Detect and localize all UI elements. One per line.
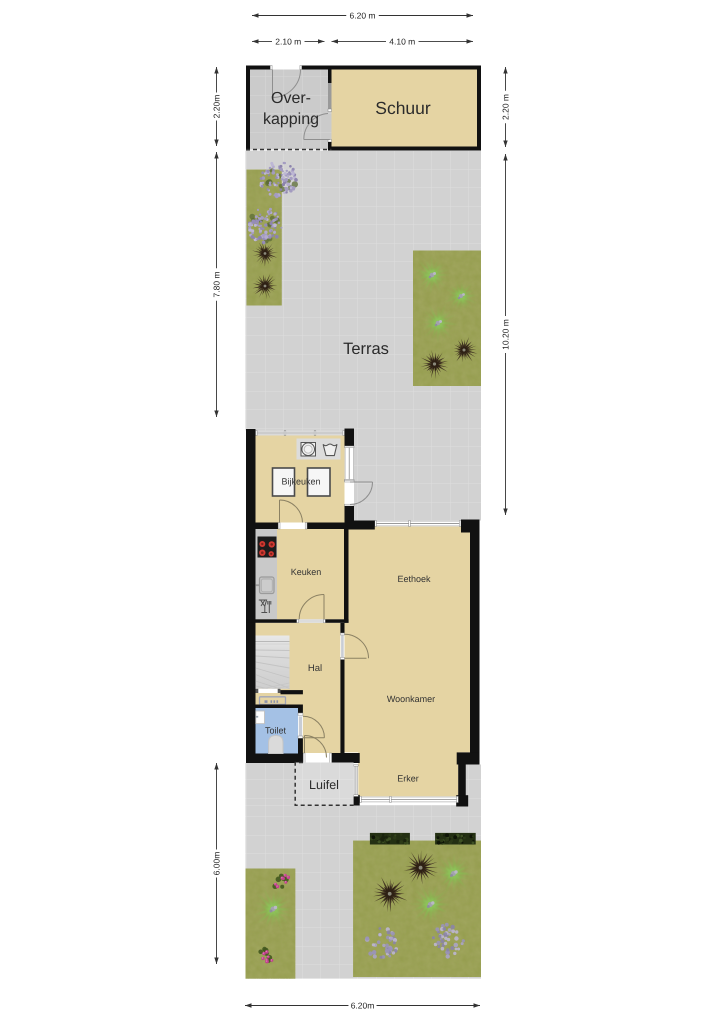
svg-text:Terras: Terras: [343, 340, 389, 358]
svg-text:Eethoek: Eethoek: [397, 574, 431, 584]
svg-text:Hal: Hal: [308, 663, 322, 674]
svg-text:Erker: Erker: [397, 774, 419, 784]
svg-text:6.20m: 6.20m: [351, 1001, 375, 1011]
svg-text:6.00m: 6.00m: [212, 852, 222, 876]
svg-text:Bijkeuken: Bijkeuken: [281, 477, 320, 487]
svg-text:Over-: Over-: [271, 90, 311, 107]
svg-text:Woonkamer: Woonkamer: [387, 694, 435, 704]
svg-text:Luifel: Luifel: [309, 778, 339, 792]
svg-text:4.10 m: 4.10 m: [389, 36, 415, 46]
svg-text:6.20 m: 6.20 m: [350, 11, 376, 21]
svg-text:kapping: kapping: [263, 111, 319, 128]
svg-text:2.20 m: 2.20 m: [501, 94, 511, 120]
svg-text:Toilet: Toilet: [265, 726, 287, 736]
svg-text:10.20 m: 10.20 m: [501, 319, 511, 350]
svg-text:2.20m: 2.20m: [212, 95, 222, 119]
svg-text:7.80 m: 7.80 m: [212, 272, 222, 298]
svg-text:Schuur: Schuur: [375, 98, 431, 118]
svg-text:2.10 m: 2.10 m: [275, 36, 301, 46]
svg-text:Keuken: Keuken: [291, 567, 322, 577]
